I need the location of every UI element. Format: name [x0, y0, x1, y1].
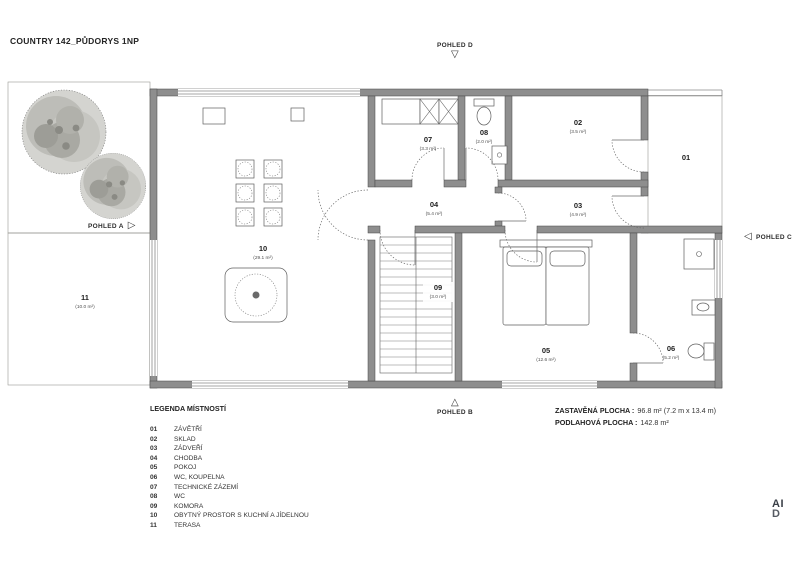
- legend-num: 10: [150, 511, 174, 521]
- legend-row-02: 02SKLAD: [150, 435, 309, 445]
- floor-area-value: 142.8 m²: [640, 418, 668, 427]
- cabinet: [203, 108, 304, 124]
- legend-row-10: 10OBYTNÝ PROSTOR S KUCHNÍ A JÍDELNOU: [150, 511, 309, 521]
- svg-text:(10.0 m²): (10.0 m²): [75, 304, 95, 310]
- legend-name: TERASA: [174, 521, 200, 531]
- svg-text:(3.0 m²): (3.0 m²): [430, 294, 447, 300]
- triangle-down-icon: ▽: [451, 50, 459, 60]
- legend-name: SKLAD: [174, 435, 196, 445]
- svg-text:04: 04: [430, 200, 439, 209]
- triangle-right-icon: ▷: [128, 221, 136, 231]
- legend-name: POKOJ: [174, 463, 196, 473]
- triangle-up-icon: △: [451, 398, 459, 408]
- logo-line-2: D: [772, 509, 784, 519]
- floor-plan: 10(29.1 m²) 07(3.3 m²) 08(2.0 m²) 02(3.5…: [0, 0, 800, 566]
- legend: LEGENDA MÍSTNOSTÍ 01ZÁVĚTŘÍ 02SKLAD 03ZÁ…: [150, 404, 309, 531]
- legend-row-07: 07TECHNICKÉ ZÁZEMÍ: [150, 483, 309, 493]
- legend-row-04: 04CHODBA: [150, 454, 309, 464]
- walls: [150, 89, 722, 388]
- svg-text:03: 03: [574, 201, 582, 210]
- svg-text:02: 02: [574, 118, 582, 127]
- svg-text:(12.6 m²): (12.6 m²): [536, 357, 556, 363]
- legend-name: CHODBA: [174, 454, 202, 464]
- view-marker-c: ◁ POHLED C: [744, 232, 792, 242]
- room-label-06: 06(5.2 m²): [663, 344, 680, 361]
- legend-num: 05: [150, 463, 174, 473]
- svg-text:(29.1 m²): (29.1 m²): [253, 255, 273, 261]
- bathroom-fixtures: [684, 239, 715, 360]
- built-area-label: ZASTAVĚNÁ PLOCHA :: [555, 406, 634, 415]
- room-label-11: 11(10.0 m²): [66, 292, 104, 312]
- legend-num: 11: [150, 521, 174, 531]
- garden-area: [8, 82, 150, 233]
- svg-text:06: 06: [667, 344, 675, 353]
- legend-num: 09: [150, 502, 174, 512]
- triangle-left-icon: ◁: [744, 232, 752, 242]
- svg-text:(3.3 m²): (3.3 m²): [420, 146, 437, 152]
- view-marker-a: POHLED A ▷: [88, 221, 136, 231]
- legend-num: 08: [150, 492, 174, 502]
- tech-appliances: [382, 99, 458, 124]
- staircase: [380, 237, 452, 373]
- view-marker-a-label: POHLED A: [88, 223, 124, 230]
- built-area-line: ZASTAVĚNÁ PLOCHA :96.8 m² (7.2 m x 13.4 …: [555, 405, 716, 417]
- legend-row-09: 09KOMORA: [150, 502, 309, 512]
- legend-num: 06: [150, 473, 174, 483]
- view-marker-c-label: POHLED C: [756, 234, 792, 241]
- svg-text:05: 05: [542, 346, 550, 355]
- studio-logo: AI D: [772, 499, 784, 519]
- legend-name: OBYTNÝ PROSTOR S KUCHNÍ A JÍDELNOU: [174, 511, 309, 521]
- svg-text:(3.5 m²): (3.5 m²): [570, 129, 587, 135]
- legend-title: LEGENDA MÍSTNOSTÍ: [150, 404, 309, 413]
- legend-name: WC, KOUPELNA: [174, 473, 225, 483]
- room-label-10: 10(29.1 m²): [253, 244, 273, 261]
- legend-num: 01: [150, 425, 174, 435]
- legend-num: 04: [150, 454, 174, 464]
- dining-table: [236, 160, 282, 226]
- legend-name: TECHNICKÉ ZÁZEMÍ: [174, 483, 238, 493]
- room-label-07: 07(3.3 m²): [420, 135, 437, 152]
- svg-text:(2.0 m²): (2.0 m²): [476, 139, 493, 145]
- room-labels: 10(29.1 m²) 07(3.3 m²) 08(2.0 m²) 02(3.5…: [66, 118, 698, 363]
- room-label-02: 02(3.5 m²): [570, 118, 587, 135]
- legend-num: 03: [150, 444, 174, 454]
- legend-name: ZÁDVEŘÍ: [174, 444, 203, 454]
- floor-area-line: PODLAHOVÁ PLOCHA :142.8 m²: [555, 417, 716, 429]
- svg-text:08: 08: [480, 128, 488, 137]
- kitchen-island: [225, 268, 287, 322]
- legend-row-05: 05POKOJ: [150, 463, 309, 473]
- legend-row-06: 06WC, KOUPELNA: [150, 473, 309, 483]
- legend-num: 07: [150, 483, 174, 493]
- legend-row-03: 03ZÁDVEŘÍ: [150, 444, 309, 454]
- room-label-09: 09(3.0 m²): [423, 282, 453, 302]
- legend-name: ZÁVĚTŘÍ: [174, 425, 202, 435]
- room-label-05: 05(12.6 m²): [536, 346, 556, 363]
- view-marker-b-label: POHLED B: [437, 409, 473, 416]
- built-area-value: 96.8 m² (7.2 m x 13.4 m): [637, 406, 716, 415]
- room-label-03: 03(4.9 m²): [570, 201, 587, 218]
- tree-icon: [22, 90, 146, 219]
- svg-text:(4.9 m²): (4.9 m²): [570, 212, 587, 218]
- view-marker-d-label: POHLED D: [437, 42, 473, 49]
- legend-num: 02: [150, 435, 174, 445]
- svg-text:09: 09: [434, 283, 442, 292]
- view-marker-b: △ POHLED B: [420, 398, 490, 416]
- legend-row-01: 01ZÁVĚTŘÍ: [150, 425, 309, 435]
- drawing-sheet: COUNTRY 142_PŮDORYS 1NP: [0, 0, 800, 566]
- svg-text:(5.2 m²): (5.2 m²): [663, 355, 680, 361]
- svg-text:07: 07: [424, 135, 432, 144]
- floor-area-label: PODLAHOVÁ PLOCHA :: [555, 418, 637, 427]
- room-label-01: 01: [674, 151, 698, 163]
- bed: [500, 240, 592, 325]
- svg-text:01: 01: [682, 153, 690, 162]
- svg-text:11: 11: [81, 293, 89, 302]
- view-marker-d: POHLED D ▽: [420, 42, 490, 60]
- legend-row-11: 11TERASA: [150, 521, 309, 531]
- legend-row-08: 08WC: [150, 492, 309, 502]
- room-label-04: 04(5.4 m²): [426, 200, 443, 217]
- legend-name: KOMORA: [174, 502, 203, 512]
- room-label-08: 08(2.0 m²): [476, 128, 493, 145]
- legend-name: WC: [174, 492, 185, 502]
- svg-text:10: 10: [259, 244, 267, 253]
- svg-text:(5.4 m²): (5.4 m²): [426, 211, 443, 217]
- area-summary: ZASTAVĚNÁ PLOCHA :96.8 m² (7.2 m x 13.4 …: [555, 405, 716, 429]
